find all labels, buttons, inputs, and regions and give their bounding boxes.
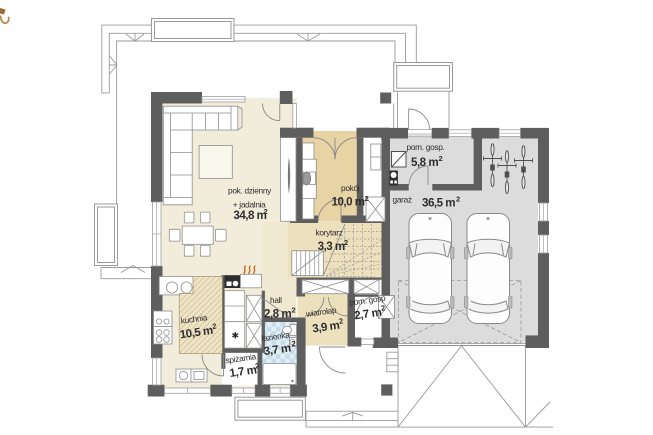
svg-text:korytarz: korytarz — [316, 227, 343, 237]
svg-text:5,8 m: 5,8 m — [411, 156, 438, 169]
svg-text:2: 2 — [344, 238, 348, 247]
svg-text:10,0 m: 10,0 m — [332, 196, 365, 209]
svg-text:hall: hall — [270, 295, 282, 305]
svg-text:2: 2 — [456, 195, 460, 204]
svg-text:2: 2 — [292, 306, 296, 315]
svg-text:pokój: pokój — [341, 183, 360, 193]
svg-text:2: 2 — [439, 154, 443, 163]
svg-text:3,3 m: 3,3 m — [318, 240, 345, 253]
svg-text:34,8 m: 34,8 m — [233, 209, 266, 222]
svg-text:2,8 m: 2,8 m — [264, 307, 291, 320]
svg-text:pok. dzienny: pok. dzienny — [228, 186, 272, 196]
svg-text:pom. gosp.: pom. gosp. — [407, 142, 445, 152]
svg-text:2: 2 — [264, 207, 268, 216]
svg-text:✱: ✱ — [232, 331, 240, 341]
svg-text:36,5 m: 36,5 m — [422, 196, 455, 209]
svg-text:garaż: garaż — [393, 195, 412, 205]
svg-text:2: 2 — [365, 194, 369, 203]
